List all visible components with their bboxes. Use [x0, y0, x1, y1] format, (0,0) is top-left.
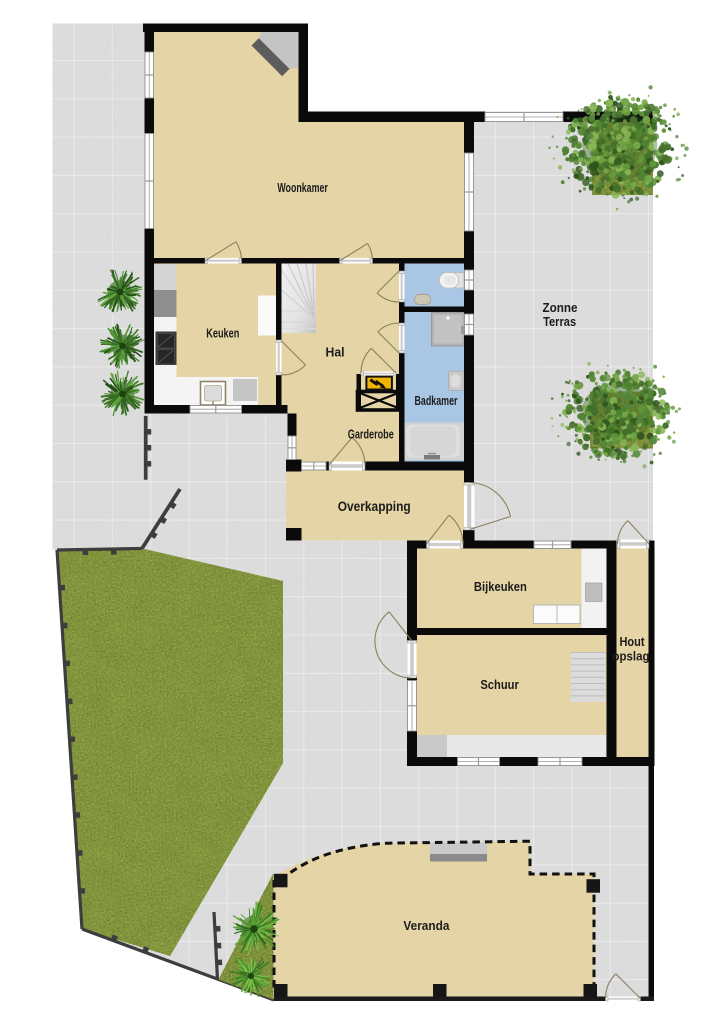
svg-text:Garderobe: Garderobe [348, 427, 394, 441]
svg-text:Hout: Hout [620, 635, 646, 649]
svg-text:Keuken: Keuken [206, 326, 239, 340]
svg-text:Overkapping: Overkapping [338, 499, 411, 514]
svg-text:Woonkamer: Woonkamer [277, 181, 328, 195]
svg-text:Bijkeuken: Bijkeuken [474, 580, 527, 594]
svg-text:Zonne: Zonne [543, 301, 578, 315]
svg-text:Schuur: Schuur [480, 678, 519, 692]
svg-text:Terras: Terras [543, 315, 576, 329]
svg-text:Hal: Hal [326, 346, 345, 360]
svg-text:opslag: opslag [613, 650, 650, 664]
svg-text:Veranda: Veranda [403, 919, 450, 933]
svg-text:Badkamer: Badkamer [415, 394, 458, 408]
